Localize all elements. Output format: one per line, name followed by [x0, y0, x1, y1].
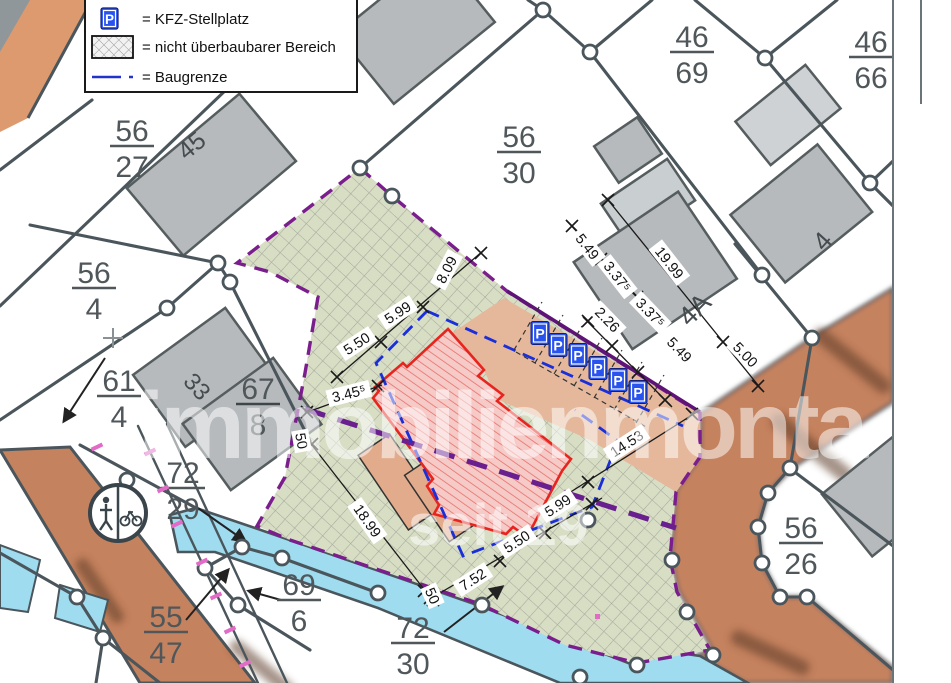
parcel-72-30: 7230 [391, 612, 435, 681]
parcel-56-27: 5627 [110, 115, 154, 184]
parcel-56-4: 564 [72, 257, 116, 326]
building-45 [127, 94, 296, 256]
svg-text:56: 56 [502, 121, 535, 154]
p-icon: P [573, 348, 582, 364]
map-canvas: P P P P P P [0, 0, 951, 683]
parcel-56-26: 5626 [779, 512, 823, 581]
legend: P = KFZ-Stellplatz = nicht überbaubarer … [85, 0, 357, 92]
p-icon: P [553, 338, 562, 354]
svg-text:55: 55 [149, 601, 182, 634]
pedestrian-bike-sign-icon [90, 485, 146, 541]
hatch-swatch-icon [92, 36, 133, 58]
svg-text:56: 56 [115, 115, 148, 148]
svg-text:46: 46 [854, 26, 887, 59]
legend-hatch-label: = nicht überbaubarer Bereich [142, 39, 336, 56]
parcel-61-4: 614 [97, 365, 141, 434]
svg-text:30: 30 [502, 157, 535, 190]
svg-text:29: 29 [166, 493, 199, 526]
legend-parking-label: = KFZ-Stellplatz [142, 11, 249, 28]
watermark-line2: seit 19 [408, 493, 589, 558]
legend-p-symbol: P [105, 12, 114, 27]
parcel-46-66: 4666 [849, 26, 893, 95]
svg-text:61: 61 [102, 365, 135, 398]
map-margin [893, 0, 951, 683]
svg-text:6: 6 [291, 605, 308, 638]
svg-text:56: 56 [784, 512, 817, 545]
svg-text:69: 69 [675, 57, 708, 90]
p-icon: P [535, 326, 544, 342]
parcel-56-30: 5630 [497, 121, 541, 190]
building-light [735, 65, 840, 165]
svg-text:66: 66 [854, 62, 887, 95]
site-plan: P P P P P P [0, 0, 951, 683]
svg-text:4: 4 [86, 293, 103, 326]
building-behind-legend [337, 0, 495, 104]
watermark-line1: immobilienmonta [138, 373, 870, 479]
survey-cross-icon [103, 328, 123, 348]
svg-text:69: 69 [282, 569, 315, 602]
legend-item-hatch: = nicht überbaubarer Bereich [92, 36, 336, 58]
svg-text:47: 47 [149, 637, 182, 670]
svg-text:46: 46 [675, 21, 708, 54]
svg-text:27: 27 [115, 151, 148, 184]
svg-text:30: 30 [396, 648, 429, 681]
svg-text:4: 4 [111, 401, 128, 434]
svg-text:26: 26 [784, 548, 817, 581]
parcel-46-69: 4669 [670, 21, 714, 90]
legend-baugrenze-label: = Baugrenze [142, 69, 227, 86]
parcel-69-6: 696 [277, 569, 321, 638]
svg-text:72: 72 [396, 612, 429, 645]
svg-text:56: 56 [77, 257, 110, 290]
